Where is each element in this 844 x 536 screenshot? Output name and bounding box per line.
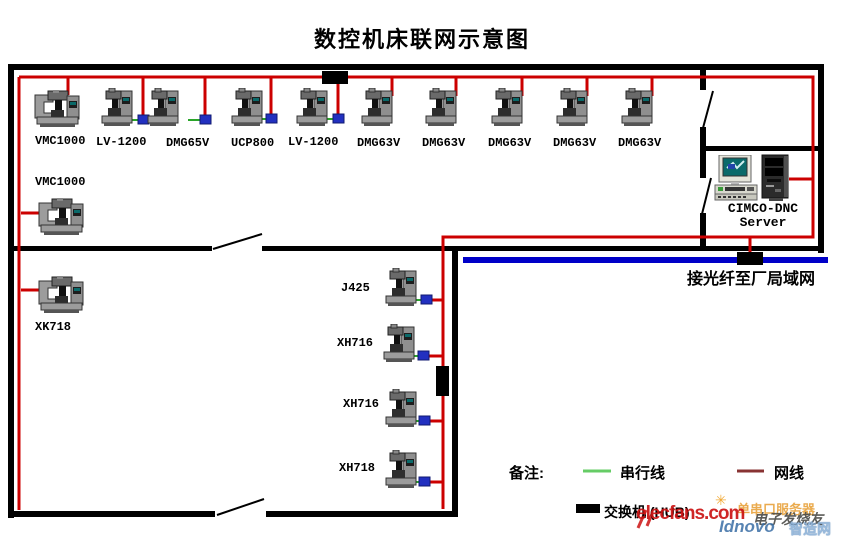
connector-lv1200-b: [333, 114, 344, 123]
legend-note-label: 备注:: [509, 462, 544, 483]
machine-label-dmg65v: DMG65V: [166, 137, 209, 149]
wall-mid-vertical: [452, 247, 458, 517]
connector-dmg65v: [200, 115, 211, 124]
machine-icon-dmg65v: [146, 88, 180, 126]
hub-top-bus: [322, 71, 348, 84]
machine-label-xk718: XK718: [35, 321, 71, 333]
machine-icon-j425: [384, 268, 418, 306]
machine-icon-xh716-b: [384, 389, 418, 427]
legend-hub-sample: [576, 504, 600, 513]
server-label: CIMCO-DNC Server: [700, 202, 826, 230]
machine-icon-xh716-a: [382, 324, 416, 362]
legend-serial-label: 串行线: [620, 462, 665, 483]
machine-label-vmc1000-b: VMC1000: [35, 176, 85, 188]
wall-bottom-left: [8, 511, 215, 517]
watermark-zhizaowang: 智造网: [789, 519, 831, 536]
machine-label-lv1200-b: LV-1200: [288, 136, 338, 148]
machine-label-vmc1000-a: VMC1000: [35, 135, 85, 147]
wall-mid-horizontal-right: [262, 246, 824, 251]
machine-icon-vmc1000-b: [38, 198, 84, 235]
machine-icon-lv1200-b: [295, 88, 329, 126]
connector-xh716-a: [418, 351, 429, 360]
machine-label-dmg63v-3: DMG63V: [488, 137, 531, 149]
machine-label-xh716-b: XH716: [343, 398, 379, 410]
door-upper-partition: [703, 91, 713, 128]
machine-icon-vmc1000-a: [34, 90, 80, 127]
wall-server-room-top: [703, 146, 824, 151]
machine-icon-lv1200-a: [100, 88, 134, 126]
diagram-title: 数控机床联网示意图: [0, 22, 844, 54]
wall-left: [8, 64, 14, 518]
diagram-canvas: 数控机床联网示意图 VMC1000 LV-1200 DMG65V UCP800 …: [0, 0, 844, 536]
machine-icon-xk718: [38, 276, 84, 313]
connector-xh716-b: [419, 416, 430, 425]
server-label-line1: CIMCO-DNC: [700, 202, 826, 216]
wall-bottom-right: [266, 511, 458, 517]
connector-xh718: [419, 477, 430, 486]
machine-icon-dmg63v-1: [360, 88, 394, 126]
machine-label-xh716-a: XH716: [337, 337, 373, 349]
machine-icon-dmg63v-4: [555, 88, 589, 126]
machine-icon-ucp800: [230, 88, 264, 126]
fiber-label: 接光纤至厂局域网: [687, 265, 815, 289]
wall-mid-horizontal-left: [8, 246, 212, 251]
wall-server-room-left-top: [700, 151, 706, 178]
machine-label-lv1200-a: LV-1200: [96, 136, 146, 148]
machine-label-xh718: XH718: [339, 462, 375, 474]
machine-icon-dmg63v-3: [490, 88, 524, 126]
fiber-line: [463, 257, 828, 263]
machine-label-j425: J425: [341, 282, 370, 294]
machine-label-dmg63v-1: DMG63V: [357, 137, 400, 149]
machine-label-dmg63v-5: DMG63V: [618, 137, 661, 149]
connector-j425: [421, 295, 432, 304]
machine-label-ucp800: UCP800: [231, 137, 274, 149]
machine-label-dmg63v-2: DMG63V: [422, 137, 465, 149]
connector-ucp800: [266, 114, 277, 123]
hub-mid-trunk: [436, 366, 449, 396]
door-mid-wall: [213, 234, 262, 249]
machine-icon-dmg63v-5: [620, 88, 654, 126]
machine-label-dmg63v-4: DMG63V: [553, 137, 596, 149]
server-label-line2: Server: [700, 216, 826, 230]
watermark-idnovo: Idnovo: [719, 517, 775, 536]
legend-network-label: 网线: [774, 462, 804, 483]
server-tower-icon: [761, 154, 791, 202]
machine-icon-dmg63v-2: [424, 88, 458, 126]
door-bottom-wall: [217, 499, 264, 515]
hub-fiber: [737, 252, 763, 265]
machine-icon-xh718: [384, 450, 418, 488]
pc-icon-cimco: [714, 155, 758, 201]
